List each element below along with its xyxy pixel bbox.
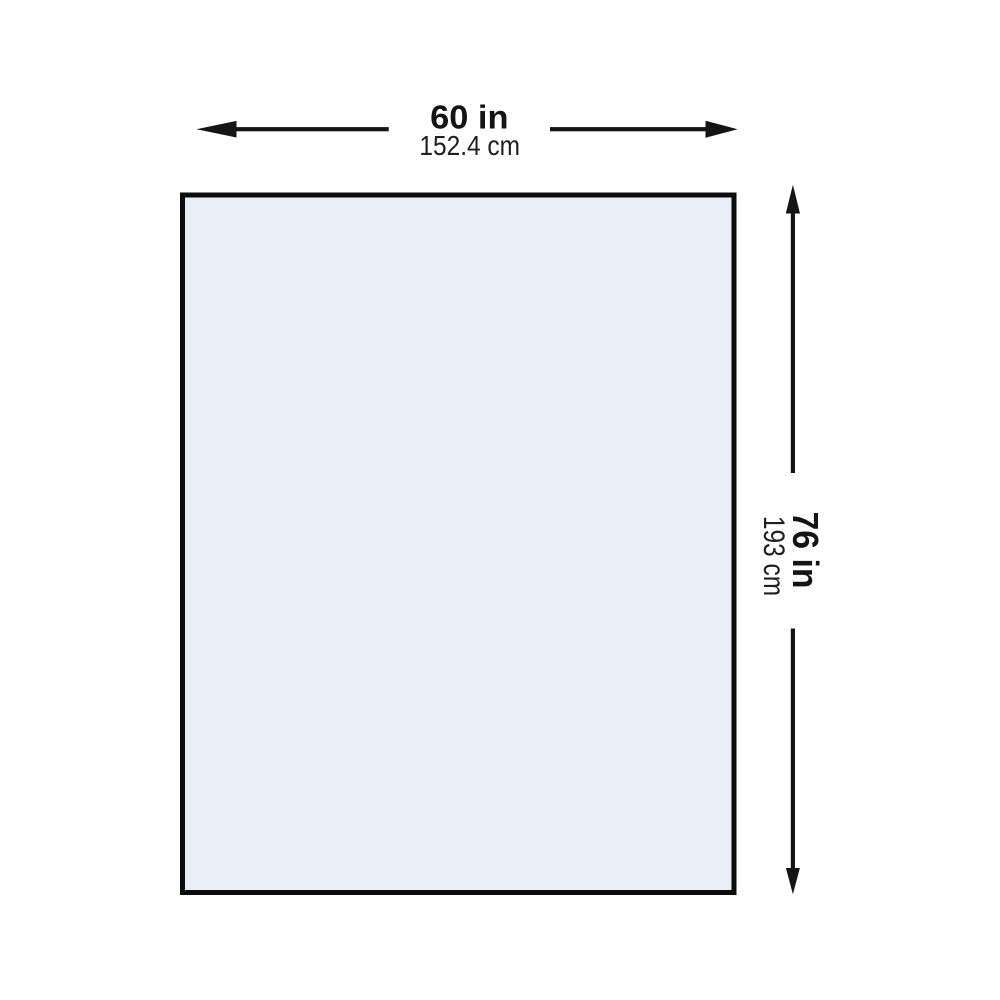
svg-text:76 in: 76 in [785, 512, 826, 589]
svg-text:152.4 cm: 152.4 cm [419, 130, 520, 161]
svg-text:193 cm: 193 cm [757, 516, 790, 596]
